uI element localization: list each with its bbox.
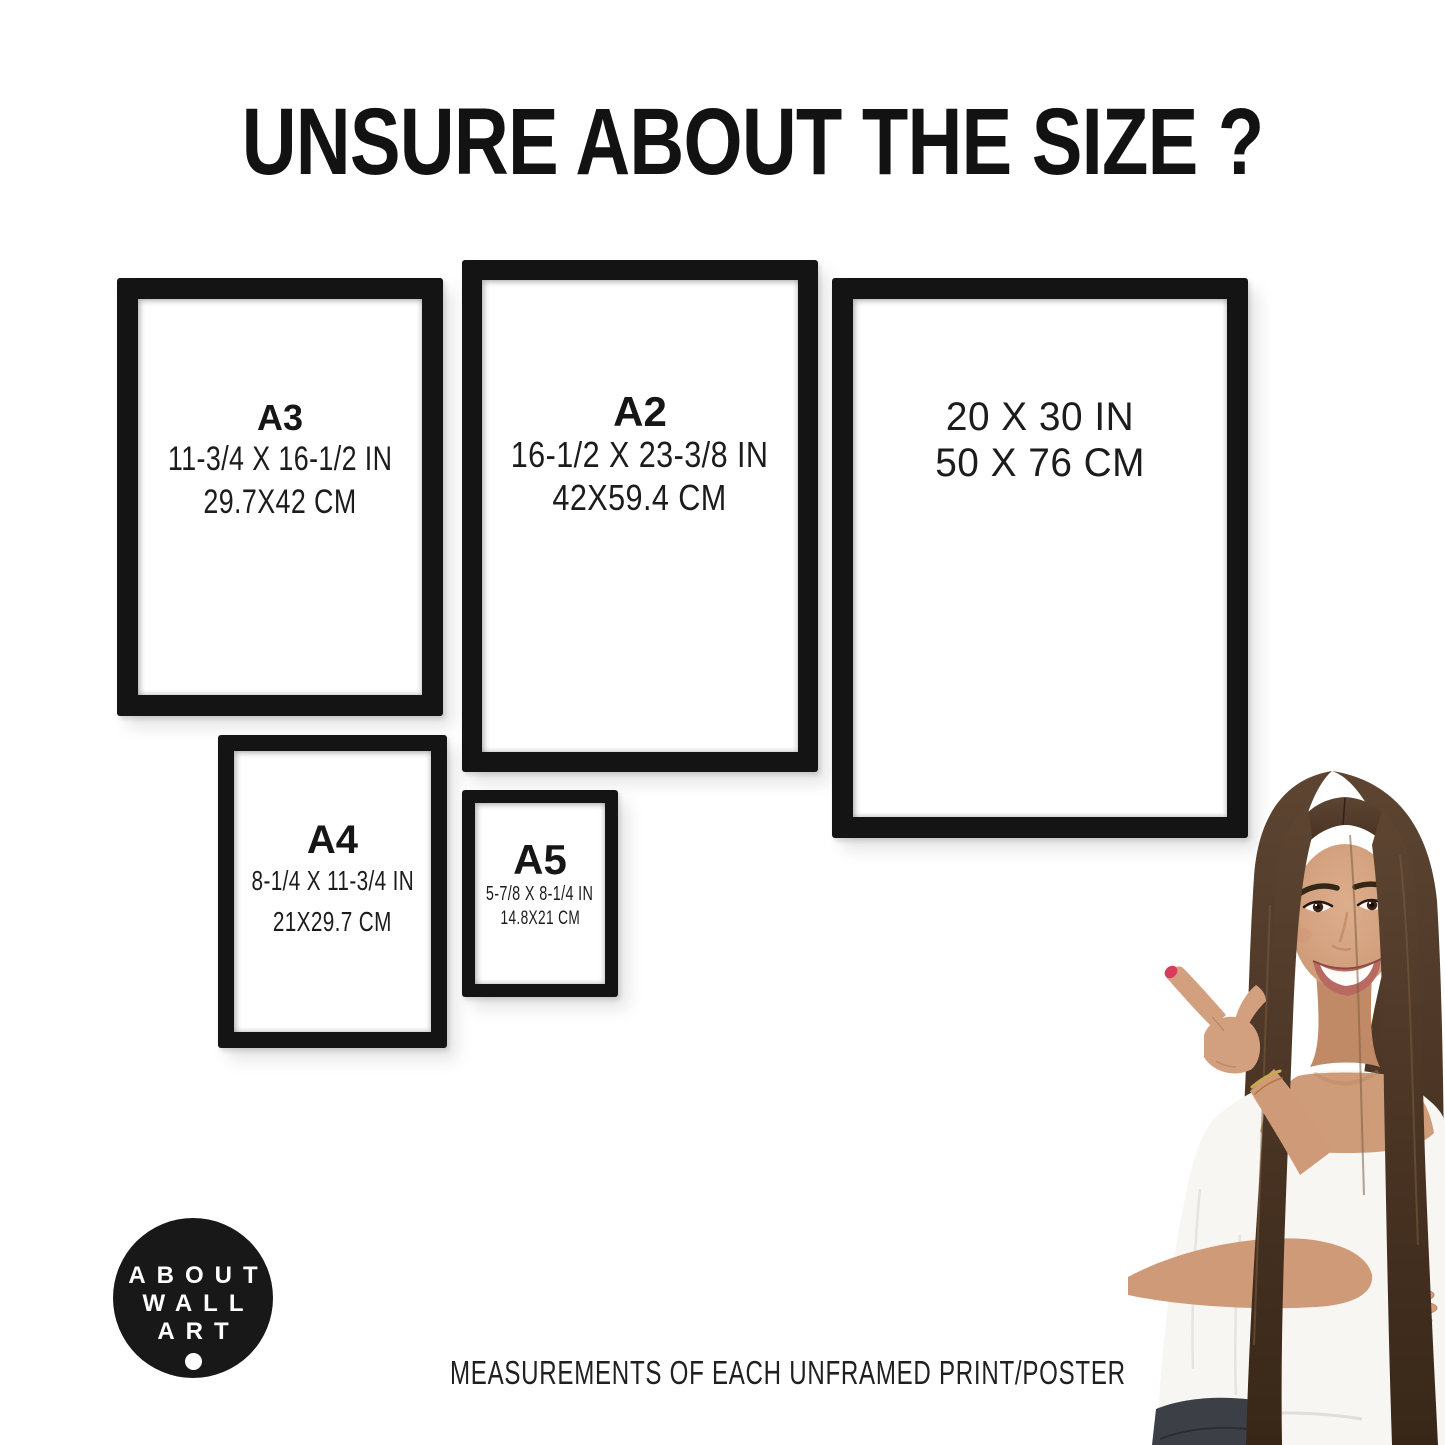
frame-a5-mat: A5 5-7/8 X 8-1/4 IN 14.8X21 CM: [475, 803, 605, 984]
frame-a4-size-inches: 8-1/4 X 11-3/4 IN: [251, 861, 414, 902]
frame-a2-mat: A2 16-1/2 X 23-3/8 IN 42X59.4 CM: [482, 280, 798, 752]
logo-line-wall: WALL: [143, 1290, 255, 1318]
frame-a2: A2 16-1/2 X 23-3/8 IN 42X59.4 CM: [462, 260, 818, 772]
frame-20x30-size-cm: 50 X 76 CM: [935, 440, 1145, 486]
frame-a5: A5 5-7/8 X 8-1/4 IN 14.8X21 CM: [462, 790, 618, 997]
frame-a3-size-cm: 29.7X42 CM: [203, 481, 356, 524]
logo-line-about: ABOUT: [128, 1262, 268, 1290]
frame-a3: A3 11-3/4 X 16-1/2 IN 29.7X42 CM: [117, 278, 443, 716]
frame-20x30: 20 X 30 IN 50 X 76 CM: [832, 278, 1248, 838]
frame-a4: A4 8-1/4 X 11-3/4 IN 21X29.7 CM: [218, 735, 447, 1048]
frame-a3-size-inches: 11-3/4 X 16-1/2 IN: [168, 438, 393, 481]
page-title: UNSURE ABOUT THE SIZE ?: [0, 88, 1445, 197]
logo-dot-icon: [185, 1353, 202, 1370]
frame-a2-label: A2: [613, 390, 667, 434]
caption: MEASUREMENTS OF EACH UNFRAMED PRINT/POST…: [325, 1354, 1003, 1392]
frame-a3-label: A3: [257, 397, 303, 438]
frame-20x30-size-inches: 20 X 30 IN: [946, 394, 1134, 440]
logo-line-art: ART: [157, 1318, 239, 1346]
frame-a4-label: A4: [307, 819, 358, 861]
frame-a5-size-cm: 14.8X21 CM: [500, 907, 580, 932]
woman-photo: [1100, 765, 1445, 1445]
frame-a4-mat: A4 8-1/4 X 11-3/4 IN 21X29.7 CM: [234, 751, 431, 1032]
frame-a2-size-cm: 42X59.4 CM: [553, 477, 727, 519]
catchlight-left: [1315, 904, 1317, 906]
frame-a2-size-inches: 16-1/2 X 23-3/8 IN: [511, 434, 769, 476]
frame-20x30-mat: 20 X 30 IN 50 X 76 CM: [853, 299, 1227, 817]
catchlight-right: [1369, 902, 1371, 904]
frame-a4-size-cm: 21X29.7 CM: [273, 902, 392, 943]
woman-crossed-forearm: [1128, 1238, 1372, 1308]
frame-a3-mat: A3 11-3/4 X 16-1/2 IN 29.7X42 CM: [138, 299, 422, 695]
brand-logo: ABOUT WALL ART: [113, 1218, 273, 1378]
frame-a5-label: A5: [513, 839, 567, 881]
size-guide-poster: UNSURE ABOUT THE SIZE ? A3 11-3/4 X 16-1…: [0, 0, 1445, 1445]
frame-a5-size-inches: 5-7/8 X 8-1/4 IN: [486, 881, 593, 907]
